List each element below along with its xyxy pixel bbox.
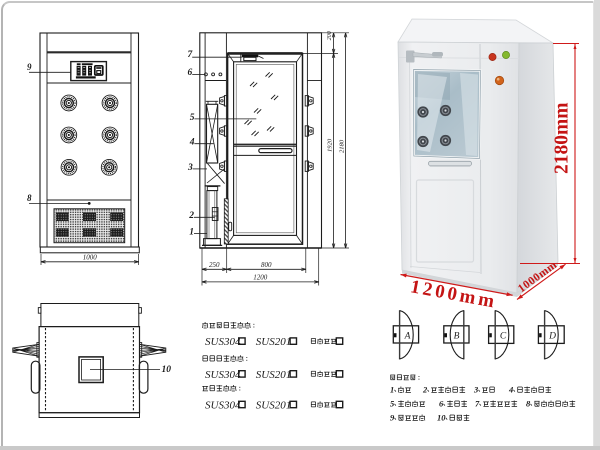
svg-text:SUS201: SUS201 — [256, 369, 291, 381]
svg-text:SUS201: SUS201 — [256, 400, 291, 412]
svg-text:1: 1 — [189, 227, 194, 237]
svg-text:9: 9 — [390, 413, 395, 423]
svg-text:SUS304: SUS304 — [205, 336, 241, 348]
svg-text:800: 800 — [261, 261, 272, 269]
svg-text:SUS304: SUS304 — [205, 400, 241, 412]
svg-text:1920: 1920 — [327, 138, 334, 152]
svg-text:SUS304: SUS304 — [205, 369, 241, 381]
svg-text:5: 5 — [390, 399, 395, 409]
svg-text:1: 1 — [390, 385, 394, 395]
svg-text:4: 4 — [189, 138, 195, 148]
svg-text:10: 10 — [437, 413, 446, 423]
svg-text:250: 250 — [209, 261, 220, 269]
svg-text:2180mm: 2180mm — [552, 103, 573, 175]
svg-text:2: 2 — [188, 211, 194, 221]
svg-text:C: C — [500, 332, 507, 342]
svg-text:200: 200 — [326, 30, 333, 40]
svg-text:6: 6 — [439, 399, 444, 409]
svg-text:A: A — [404, 332, 411, 342]
svg-text:3: 3 — [187, 163, 193, 173]
svg-text:8: 8 — [27, 193, 32, 203]
svg-text:SUS201: SUS201 — [256, 336, 291, 348]
svg-text:6: 6 — [188, 68, 193, 78]
svg-text:1000: 1000 — [83, 254, 98, 262]
svg-text:2180: 2180 — [339, 139, 346, 153]
svg-text:10: 10 — [162, 365, 172, 375]
svg-text:9: 9 — [27, 62, 32, 72]
svg-text:8: 8 — [526, 399, 531, 409]
svg-text:5: 5 — [190, 113, 195, 123]
svg-text:D: D — [548, 332, 556, 342]
svg-text:B: B — [454, 332, 460, 342]
svg-text:1200: 1200 — [253, 274, 268, 282]
svg-text:7: 7 — [188, 50, 194, 60]
svg-text:4: 4 — [508, 385, 513, 395]
svg-text:3: 3 — [473, 385, 479, 395]
svg-text:2: 2 — [422, 385, 428, 395]
svg-text:7: 7 — [475, 399, 480, 409]
